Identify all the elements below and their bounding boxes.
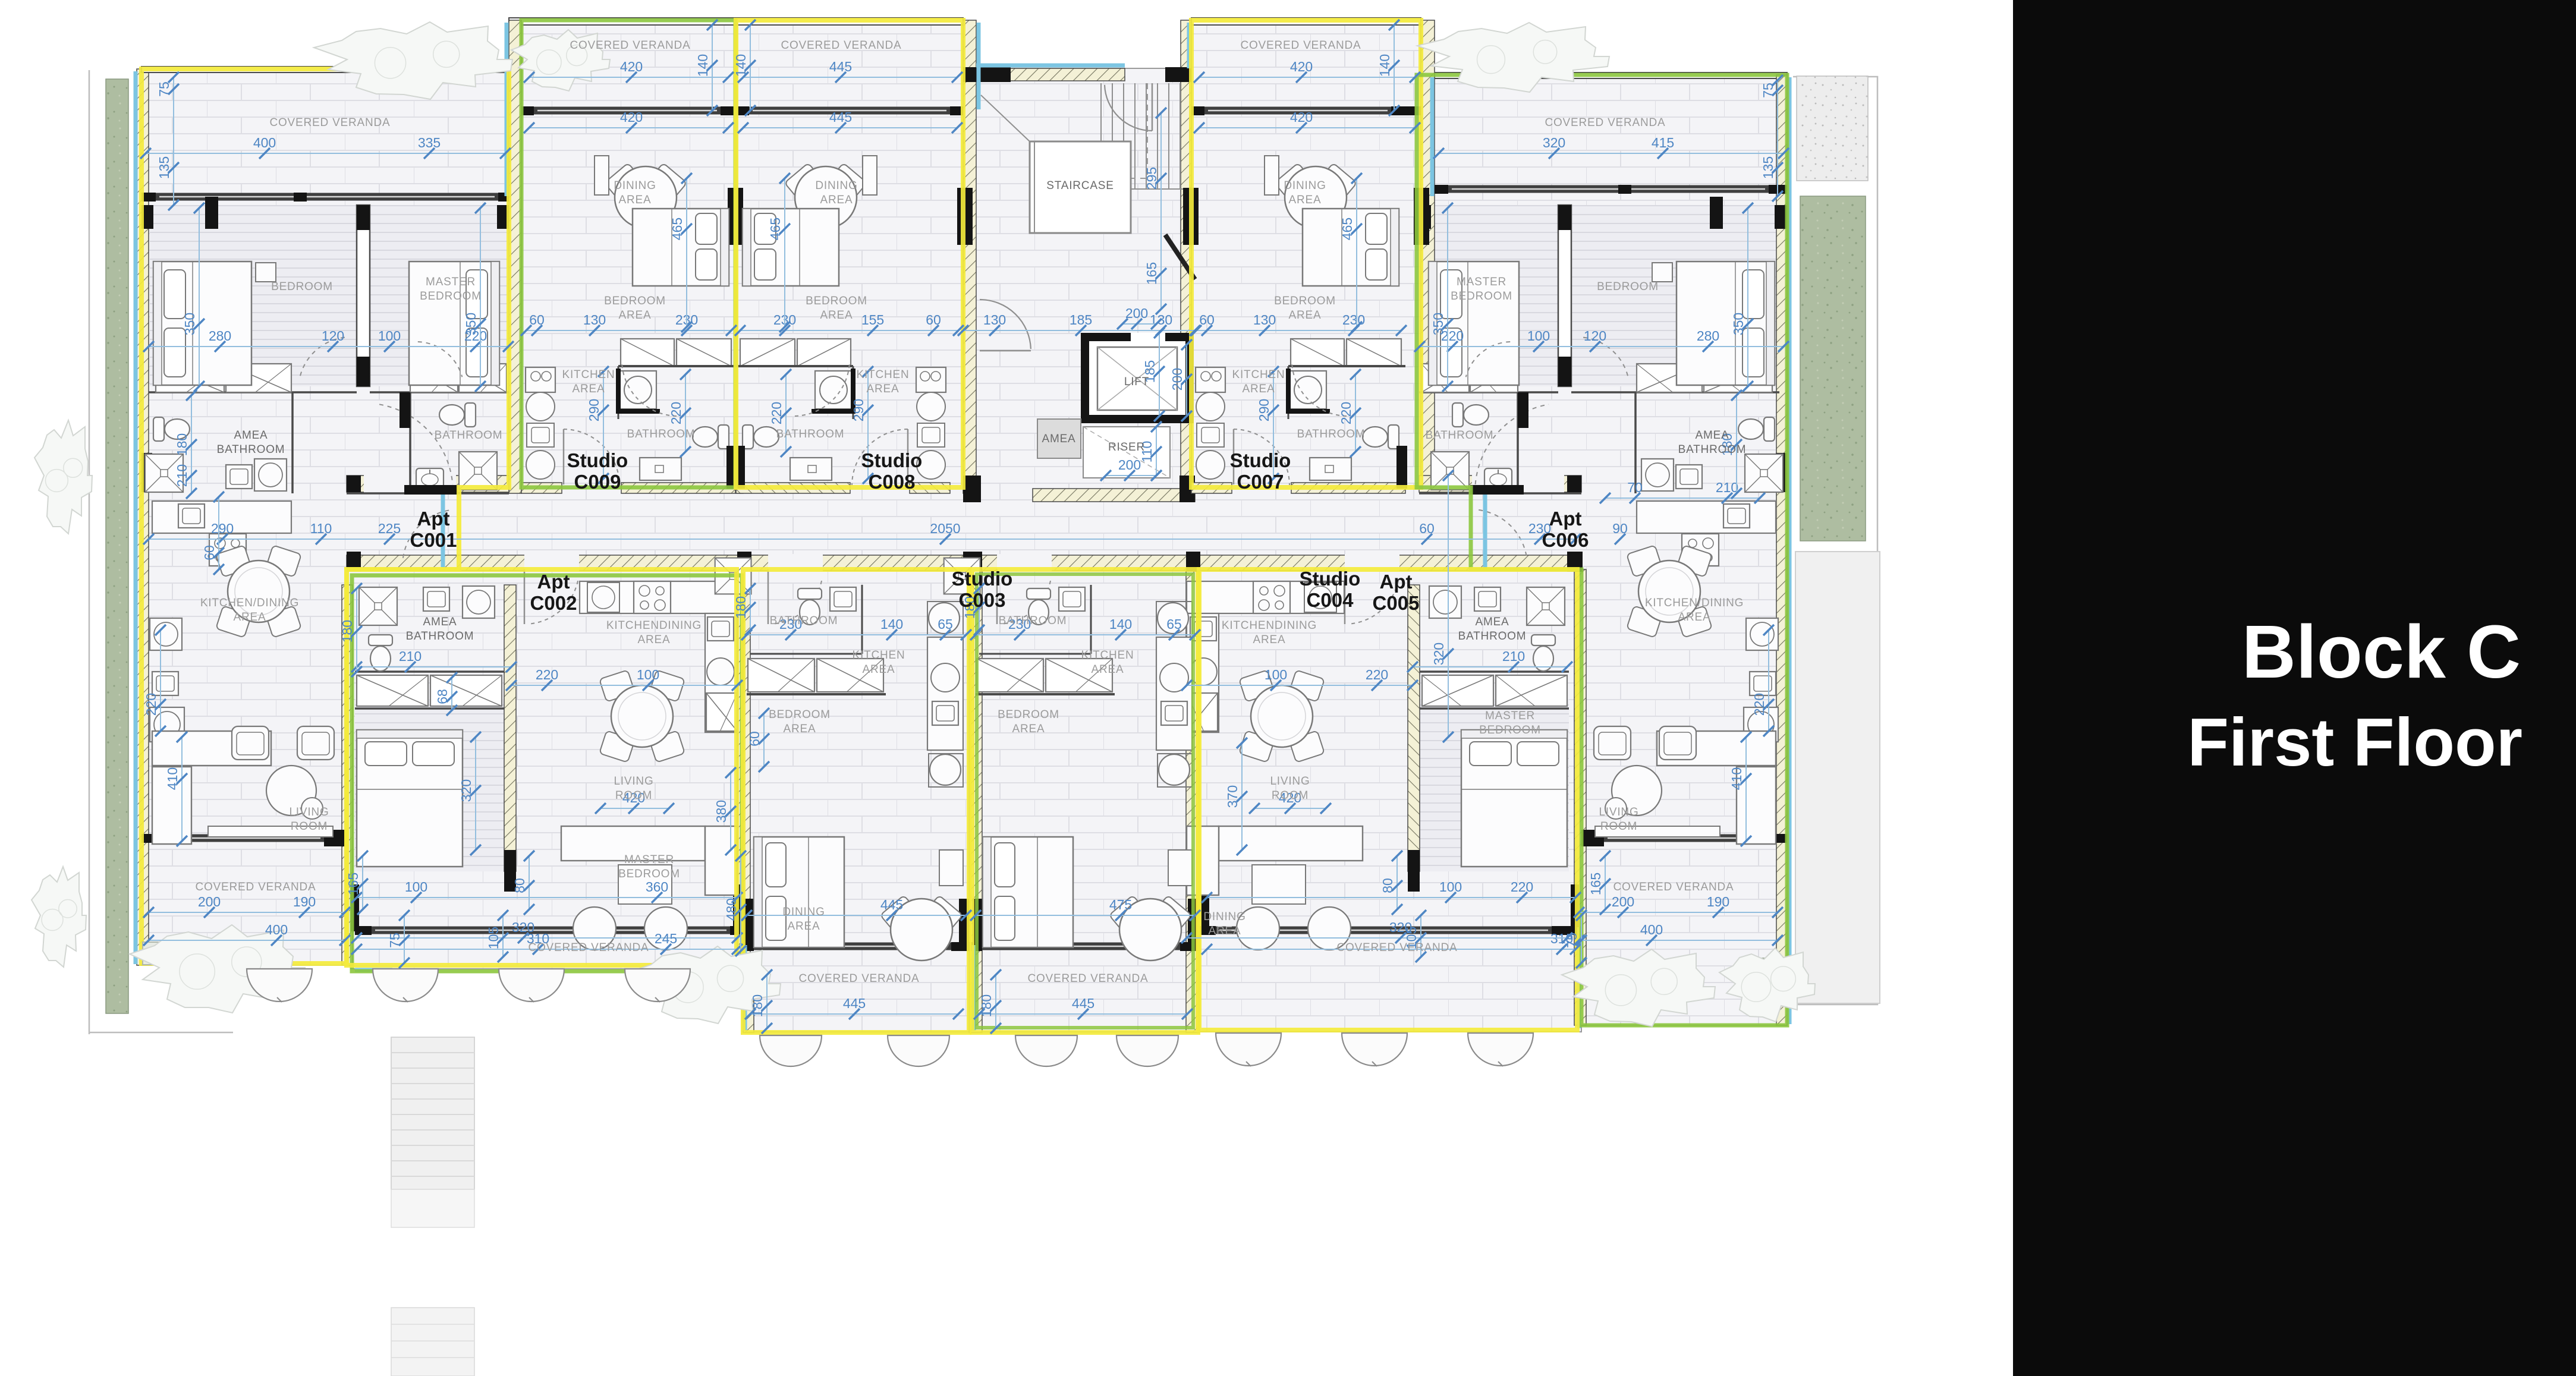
svg-text:190: 190 [293, 894, 316, 909]
svg-text:COVERED VERANDA: COVERED VERANDA [1240, 39, 1361, 52]
svg-text:350: 350 [1430, 313, 1446, 335]
svg-text:C005: C005 [1373, 592, 1420, 614]
svg-text:210: 210 [174, 464, 190, 487]
svg-text:200: 200 [1118, 457, 1141, 473]
svg-text:245: 245 [655, 931, 677, 946]
svg-text:320: 320 [1431, 643, 1446, 665]
svg-text:90: 90 [1612, 521, 1628, 536]
svg-text:75: 75 [1760, 83, 1776, 98]
svg-text:AREA: AREA [619, 309, 652, 322]
svg-text:220: 220 [668, 402, 684, 424]
svg-text:KITCHEN/DINING: KITCHEN/DINING [200, 597, 299, 609]
svg-text:335: 335 [418, 135, 441, 150]
svg-text:AREA: AREA [638, 634, 671, 646]
svg-text:60: 60 [1199, 312, 1215, 328]
svg-text:ROOM: ROOM [1600, 820, 1637, 833]
svg-text:120: 120 [1584, 328, 1606, 344]
svg-text:AREA: AREA [1209, 925, 1241, 937]
svg-text:BEDROOM: BEDROOM [1597, 281, 1659, 293]
svg-text:LIVING: LIVING [289, 806, 329, 818]
svg-text:MASTER: MASTER [624, 854, 674, 866]
svg-text:80: 80 [512, 878, 527, 893]
svg-text:COVERED VERANDA: COVERED VERANDA [195, 881, 316, 893]
svg-text:140: 140 [695, 54, 710, 77]
svg-text:415: 415 [1652, 135, 1674, 150]
svg-text:KITCHEN: KITCHEN [853, 649, 905, 662]
svg-text:Apt: Apt [537, 571, 570, 593]
svg-text:70: 70 [1627, 480, 1643, 495]
svg-text:445: 445 [880, 897, 903, 912]
svg-text:DINING: DINING [782, 906, 825, 918]
svg-text:COVERED VERANDA: COVERED VERANDA [798, 972, 919, 985]
svg-text:AREA: AREA [1092, 663, 1124, 676]
svg-text:220: 220 [536, 667, 558, 682]
svg-text:BEDROOM: BEDROOM [420, 290, 482, 303]
svg-text:350: 350 [463, 313, 479, 335]
svg-text:180: 180 [339, 620, 355, 643]
svg-text:100: 100 [405, 879, 427, 895]
svg-text:220: 220 [1338, 402, 1354, 424]
svg-text:BATHROOM: BATHROOM [776, 428, 845, 440]
svg-text:Apt: Apt [417, 508, 450, 530]
svg-text:290: 290 [1256, 399, 1272, 421]
svg-text:COVERED VERANDA: COVERED VERANDA [1027, 972, 1148, 985]
svg-text:110: 110 [310, 521, 332, 536]
svg-text:AREA: AREA [788, 920, 820, 933]
svg-text:AMEA: AMEA [1042, 433, 1075, 445]
svg-text:165: 165 [345, 873, 361, 895]
svg-text:LIVING: LIVING [1599, 806, 1638, 818]
svg-text:100: 100 [1439, 879, 1462, 895]
svg-text:65: 65 [938, 616, 953, 632]
svg-text:280: 280 [1697, 328, 1719, 344]
svg-text:C008: C008 [869, 471, 916, 493]
svg-text:BEDROOM: BEDROOM [998, 709, 1059, 721]
svg-text:DINING: DINING [614, 180, 656, 192]
svg-text:295: 295 [1144, 167, 1159, 190]
svg-text:C006: C006 [1542, 529, 1589, 551]
svg-text:185: 185 [1070, 312, 1092, 328]
svg-text:Studio: Studio [952, 568, 1013, 590]
svg-text:165: 165 [1588, 873, 1603, 895]
svg-text:400: 400 [1640, 922, 1663, 937]
svg-text:BATHROOM: BATHROOM [406, 630, 474, 643]
svg-text:AREA: AREA [1253, 634, 1286, 646]
svg-text:AREA: AREA [1289, 194, 1322, 206]
svg-text:320: 320 [458, 779, 474, 802]
svg-text:BEDROOM: BEDROOM [604, 295, 666, 307]
svg-text:BEDROOM: BEDROOM [769, 709, 831, 721]
svg-text:225: 225 [378, 521, 401, 536]
svg-text:BATHROOM: BATHROOM [1458, 630, 1527, 643]
svg-text:AREA: AREA [234, 611, 266, 624]
svg-text:60: 60 [1419, 521, 1435, 536]
svg-text:180: 180 [733, 596, 748, 619]
svg-text:210: 210 [1716, 480, 1738, 495]
svg-text:AREA: AREA [1678, 611, 1711, 624]
svg-text:120: 120 [322, 328, 344, 344]
svg-text:C009: C009 [574, 471, 621, 493]
svg-text:C001: C001 [410, 529, 457, 551]
svg-text:220: 220 [1366, 667, 1388, 682]
svg-text:AREA: AREA [573, 383, 605, 395]
svg-text:BATHROOM: BATHROOM [1297, 428, 1366, 440]
svg-text:AREA: AREA [1012, 723, 1045, 735]
svg-text:60: 60 [747, 731, 762, 747]
svg-text:60: 60 [202, 545, 217, 561]
svg-text:AMEA: AMEA [234, 429, 268, 442]
svg-text:AREA: AREA [820, 194, 853, 206]
svg-text:180: 180 [174, 433, 190, 456]
svg-text:AMEA: AMEA [423, 616, 457, 628]
svg-text:ROOM: ROOM [1272, 789, 1309, 802]
svg-text:410: 410 [1729, 767, 1744, 790]
svg-text:KITCHEN: KITCHEN [857, 369, 910, 381]
svg-text:370: 370 [1225, 785, 1240, 808]
svg-text:BATHROOM: BATHROOM [999, 615, 1067, 627]
svg-text:210: 210 [1502, 648, 1525, 664]
svg-text:140: 140 [733, 54, 748, 77]
svg-text:RISER: RISER [1108, 441, 1145, 454]
svg-text:445: 445 [829, 109, 852, 125]
svg-text:200: 200 [1125, 306, 1148, 321]
svg-text:COVERED VERANDA: COVERED VERANDA [1336, 942, 1457, 954]
svg-text:BEDROOM: BEDROOM [806, 295, 867, 307]
svg-text:COVERED VERANDA: COVERED VERANDA [1545, 116, 1665, 129]
svg-text:BEDROOM: BEDROOM [1274, 295, 1336, 307]
svg-text:480: 480 [724, 898, 739, 921]
svg-text:AREA: AREA [619, 194, 652, 206]
svg-text:AMEA: AMEA [1695, 429, 1729, 442]
svg-text:AREA: AREA [1243, 383, 1275, 395]
svg-text:MASTER: MASTER [1485, 710, 1535, 722]
svg-text:MASTER: MASTER [426, 276, 476, 288]
svg-text:200: 200 [1169, 368, 1185, 391]
svg-text:2050: 2050 [930, 521, 960, 536]
svg-text:AREA: AREA [863, 663, 895, 676]
svg-text:140: 140 [1109, 616, 1132, 632]
svg-text:AREA: AREA [820, 309, 853, 322]
svg-text:320: 320 [1543, 135, 1565, 150]
svg-text:400: 400 [253, 135, 276, 150]
svg-text:130: 130 [1253, 312, 1276, 328]
svg-text:AREA: AREA [867, 383, 899, 395]
svg-text:DINING: DINING [1284, 180, 1326, 192]
svg-text:ROOM: ROOM [291, 820, 328, 833]
svg-text:465: 465 [1339, 218, 1355, 240]
svg-text:280: 280 [209, 328, 231, 344]
svg-text:Studio: Studio [567, 449, 628, 471]
svg-text:230: 230 [1342, 312, 1365, 328]
svg-text:60: 60 [529, 312, 545, 328]
svg-text:Studio: Studio [861, 449, 923, 471]
svg-text:C004: C004 [1307, 589, 1354, 611]
svg-text:KITCHEN: KITCHEN [1232, 369, 1285, 381]
svg-text:COVERED VERANDA: COVERED VERANDA [570, 39, 690, 52]
svg-text:220: 220 [769, 402, 784, 424]
svg-text:DINING: DINING [1203, 911, 1245, 923]
svg-text:465: 465 [669, 218, 685, 240]
svg-text:BATHROOM: BATHROOM [435, 429, 503, 442]
svg-text:475: 475 [1109, 897, 1132, 912]
svg-text:165: 165 [1144, 262, 1159, 285]
svg-text:60: 60 [926, 312, 941, 328]
svg-text:290: 290 [211, 521, 234, 536]
svg-text:ROOM: ROOM [615, 789, 652, 802]
svg-text:410: 410 [165, 767, 180, 790]
svg-text:400: 400 [265, 922, 288, 937]
svg-text:KITCHEN/DINING: KITCHEN/DINING [1645, 597, 1744, 609]
svg-text:140: 140 [1377, 54, 1392, 77]
svg-text:Apt: Apt [1380, 571, 1413, 593]
svg-text:KITCHENDINING: KITCHENDINING [606, 619, 702, 632]
svg-text:First Floor: First Floor [2187, 705, 2522, 780]
svg-text:445: 445 [843, 996, 866, 1011]
svg-text:100: 100 [1265, 667, 1287, 682]
svg-text:75: 75 [1564, 933, 1580, 948]
svg-text:LIVING: LIVING [614, 775, 653, 788]
svg-text:75: 75 [387, 933, 402, 948]
svg-text:AREA: AREA [784, 723, 816, 735]
svg-text:190: 190 [1707, 894, 1729, 909]
svg-text:135: 135 [156, 156, 172, 179]
svg-text:AREA: AREA [1289, 309, 1322, 322]
svg-text:LIVING: LIVING [1270, 775, 1310, 788]
svg-text:Block C: Block C [2242, 610, 2521, 694]
svg-text:75: 75 [156, 81, 172, 97]
svg-text:420: 420 [620, 109, 643, 125]
svg-text:KITCHEN: KITCHEN [562, 369, 615, 381]
svg-text:BATHROOM: BATHROOM [217, 443, 285, 456]
svg-text:C007: C007 [1237, 471, 1284, 493]
svg-text:100: 100 [378, 328, 401, 344]
svg-text:Studio: Studio [1230, 449, 1291, 471]
svg-text:105: 105 [486, 927, 501, 949]
svg-text:COVERED VERANDA: COVERED VERANDA [1613, 881, 1734, 893]
svg-text:100: 100 [1527, 328, 1550, 344]
svg-text:200: 200 [1612, 894, 1634, 909]
svg-text:290: 290 [851, 399, 866, 421]
svg-text:220: 220 [1751, 693, 1767, 716]
svg-text:380: 380 [713, 800, 729, 823]
svg-text:210: 210 [399, 648, 422, 664]
svg-text:130: 130 [583, 312, 606, 328]
svg-text:68: 68 [435, 689, 450, 704]
svg-text:140: 140 [880, 616, 903, 632]
svg-text:AMEA: AMEA [1475, 616, 1509, 628]
svg-text:DINING: DINING [815, 180, 857, 192]
svg-text:STAIRCASE: STAIRCASE [1046, 180, 1114, 192]
svg-text:BATHROOM: BATHROOM [627, 428, 696, 440]
svg-text:135: 135 [1760, 156, 1776, 179]
svg-text:420: 420 [620, 59, 643, 74]
svg-text:220: 220 [143, 693, 159, 716]
svg-text:Apt: Apt [1549, 508, 1582, 530]
svg-text:C003: C003 [959, 589, 1006, 611]
svg-text:100: 100 [637, 667, 659, 682]
svg-text:COVERED VERANDA: COVERED VERANDA [528, 942, 649, 954]
svg-text:155: 155 [861, 312, 884, 328]
svg-text:180: 180 [979, 994, 994, 1017]
svg-text:130: 130 [983, 312, 1006, 328]
svg-text:KITCHENDINING: KITCHENDINING [1222, 619, 1317, 632]
svg-text:LIFT: LIFT [1124, 376, 1149, 388]
svg-text:220: 220 [1511, 879, 1533, 895]
svg-text:Studio: Studio [1300, 568, 1361, 590]
svg-text:420: 420 [1290, 109, 1313, 125]
svg-text:BEDROOM: BEDROOM [618, 868, 680, 880]
svg-text:BEDROOM: BEDROOM [1479, 724, 1541, 736]
svg-text:445: 445 [829, 59, 852, 74]
svg-text:465: 465 [768, 218, 783, 240]
svg-text:445: 445 [1072, 996, 1094, 1011]
svg-text:BATHROOM: BATHROOM [1426, 429, 1494, 442]
svg-text:360: 360 [646, 879, 668, 895]
svg-text:BATHROOM: BATHROOM [770, 615, 838, 627]
svg-text:350: 350 [182, 313, 197, 335]
svg-text:C002: C002 [530, 592, 577, 614]
svg-text:COVERED VERANDA: COVERED VERANDA [269, 116, 390, 129]
svg-text:290: 290 [586, 399, 602, 421]
svg-text:BATHROOM: BATHROOM [1678, 443, 1747, 456]
svg-text:80: 80 [1380, 878, 1395, 893]
svg-text:65: 65 [1166, 616, 1182, 632]
svg-text:350: 350 [1731, 313, 1746, 335]
svg-text:200: 200 [198, 894, 221, 909]
svg-text:180: 180 [750, 994, 765, 1017]
svg-text:BEDROOM: BEDROOM [1451, 290, 1512, 303]
svg-text:420: 420 [1290, 59, 1313, 74]
svg-text:COVERED VERANDA: COVERED VERANDA [781, 39, 901, 52]
svg-text:BEDROOM: BEDROOM [271, 281, 333, 293]
svg-text:MASTER: MASTER [1457, 276, 1506, 288]
svg-text:KITCHEN: KITCHEN [1081, 649, 1134, 662]
